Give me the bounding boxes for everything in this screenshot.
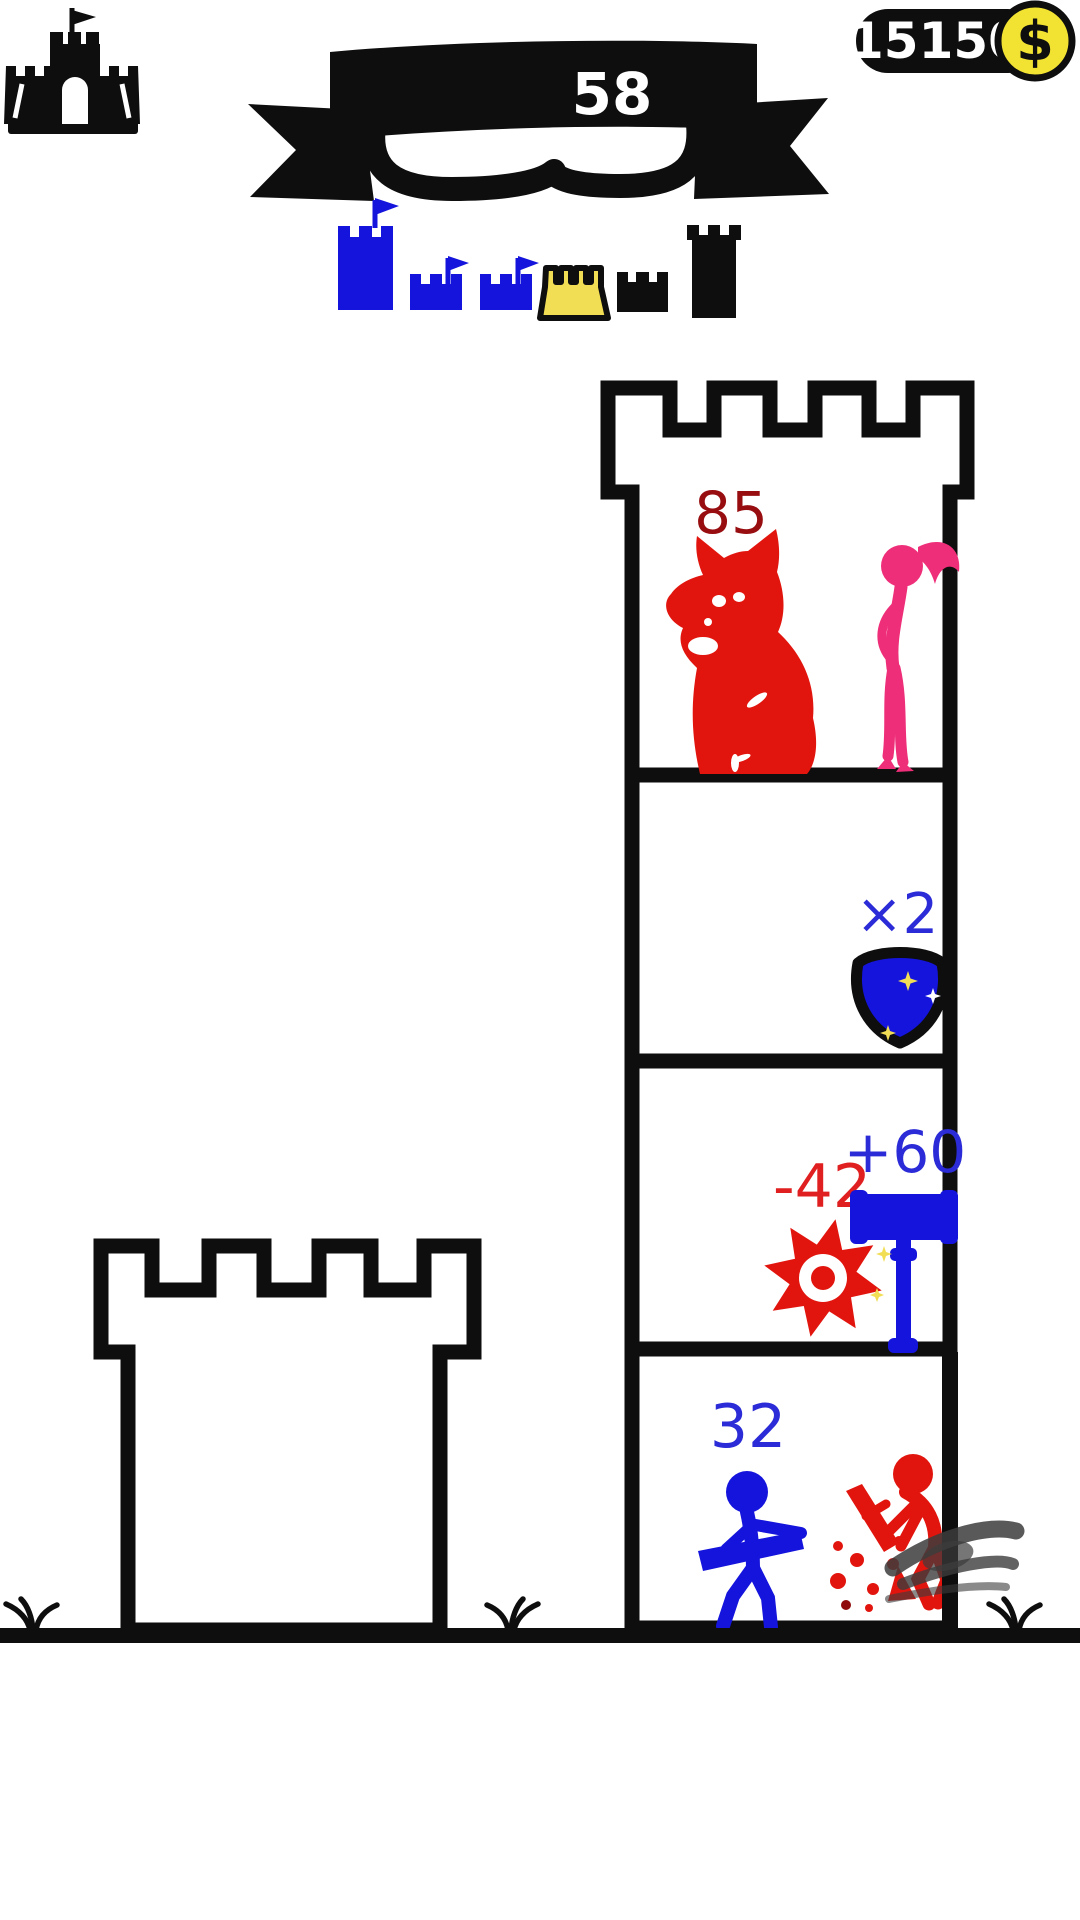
blood-drop-dark — [841, 1600, 851, 1610]
level-progress-track — [338, 198, 741, 318]
flag-icon — [375, 198, 399, 215]
banner-left-curl — [373, 126, 554, 189]
castle-door — [62, 77, 88, 124]
floor-2-powerup: ×2 — [856, 882, 944, 1043]
blood-drop — [867, 1583, 879, 1595]
castle-shape — [540, 268, 608, 318]
bonus-label: +60 — [844, 1118, 966, 1186]
game-scene[interactable]: 15150 $ 58 — [0, 0, 1080, 1920]
coin-counter[interactable]: 15150 $ — [849, 4, 1072, 78]
castle-shape — [617, 272, 668, 312]
enemy-hp-label: 85 — [694, 479, 768, 547]
blood-drop — [850, 1553, 864, 1567]
grass-blade — [36, 1605, 57, 1630]
progress-tall-tower-upcoming — [687, 225, 741, 318]
level-number: 58 — [572, 60, 653, 128]
banner-ribbon — [330, 41, 757, 140]
banner-right-curl — [554, 124, 698, 186]
demon-muzzle — [688, 637, 718, 655]
flag-icon — [448, 256, 469, 271]
progress-small-castle-done — [410, 256, 469, 310]
castle-left-wing — [4, 66, 56, 124]
hero-hp-label: 32 — [710, 1392, 786, 1462]
castle-right-wing — [88, 66, 140, 124]
castle-shape — [410, 274, 462, 310]
handle-pommel — [888, 1338, 918, 1353]
demon-eye — [733, 592, 745, 602]
dollar-symbol: $ — [1016, 10, 1054, 73]
progress-small-castle-upcoming — [617, 272, 668, 312]
grass-blade — [487, 1605, 508, 1630]
blood-drop — [865, 1604, 873, 1612]
progress-small-castle-done — [480, 256, 539, 310]
flag-icon — [72, 10, 96, 25]
castle-menu-button[interactable] — [4, 8, 140, 134]
grass-tuft — [6, 1599, 57, 1630]
hammer-head-cap — [940, 1190, 958, 1244]
blood-drop — [830, 1573, 846, 1589]
hammer-head-cap — [850, 1190, 868, 1244]
progress-tall-tower-done — [338, 198, 399, 310]
shield-multiplier-label: ×2 — [856, 882, 939, 947]
blood-drop — [894, 1536, 904, 1546]
flag-icon — [518, 256, 539, 271]
body-slash — [731, 754, 739, 772]
progress-current-castle — [540, 268, 608, 318]
ground-line — [0, 1628, 1080, 1643]
tower-shape — [338, 226, 393, 310]
castle-shape — [480, 274, 532, 310]
game-screen: 15150 $ 58 — [0, 0, 1080, 1920]
handle-collar — [890, 1248, 917, 1261]
demon-eye — [712, 595, 726, 607]
saw-hub — [811, 1266, 835, 1290]
demon-spot — [704, 618, 712, 626]
blood-drop — [833, 1541, 843, 1551]
grass-tuft — [487, 1599, 538, 1630]
grass-tuft — [989, 1599, 1040, 1630]
tower-shape — [687, 225, 741, 318]
grass-blade — [1019, 1605, 1040, 1630]
left-tower — [101, 1246, 474, 1630]
girl-leg — [895, 668, 903, 762]
level-banner: 58 — [248, 41, 829, 201]
